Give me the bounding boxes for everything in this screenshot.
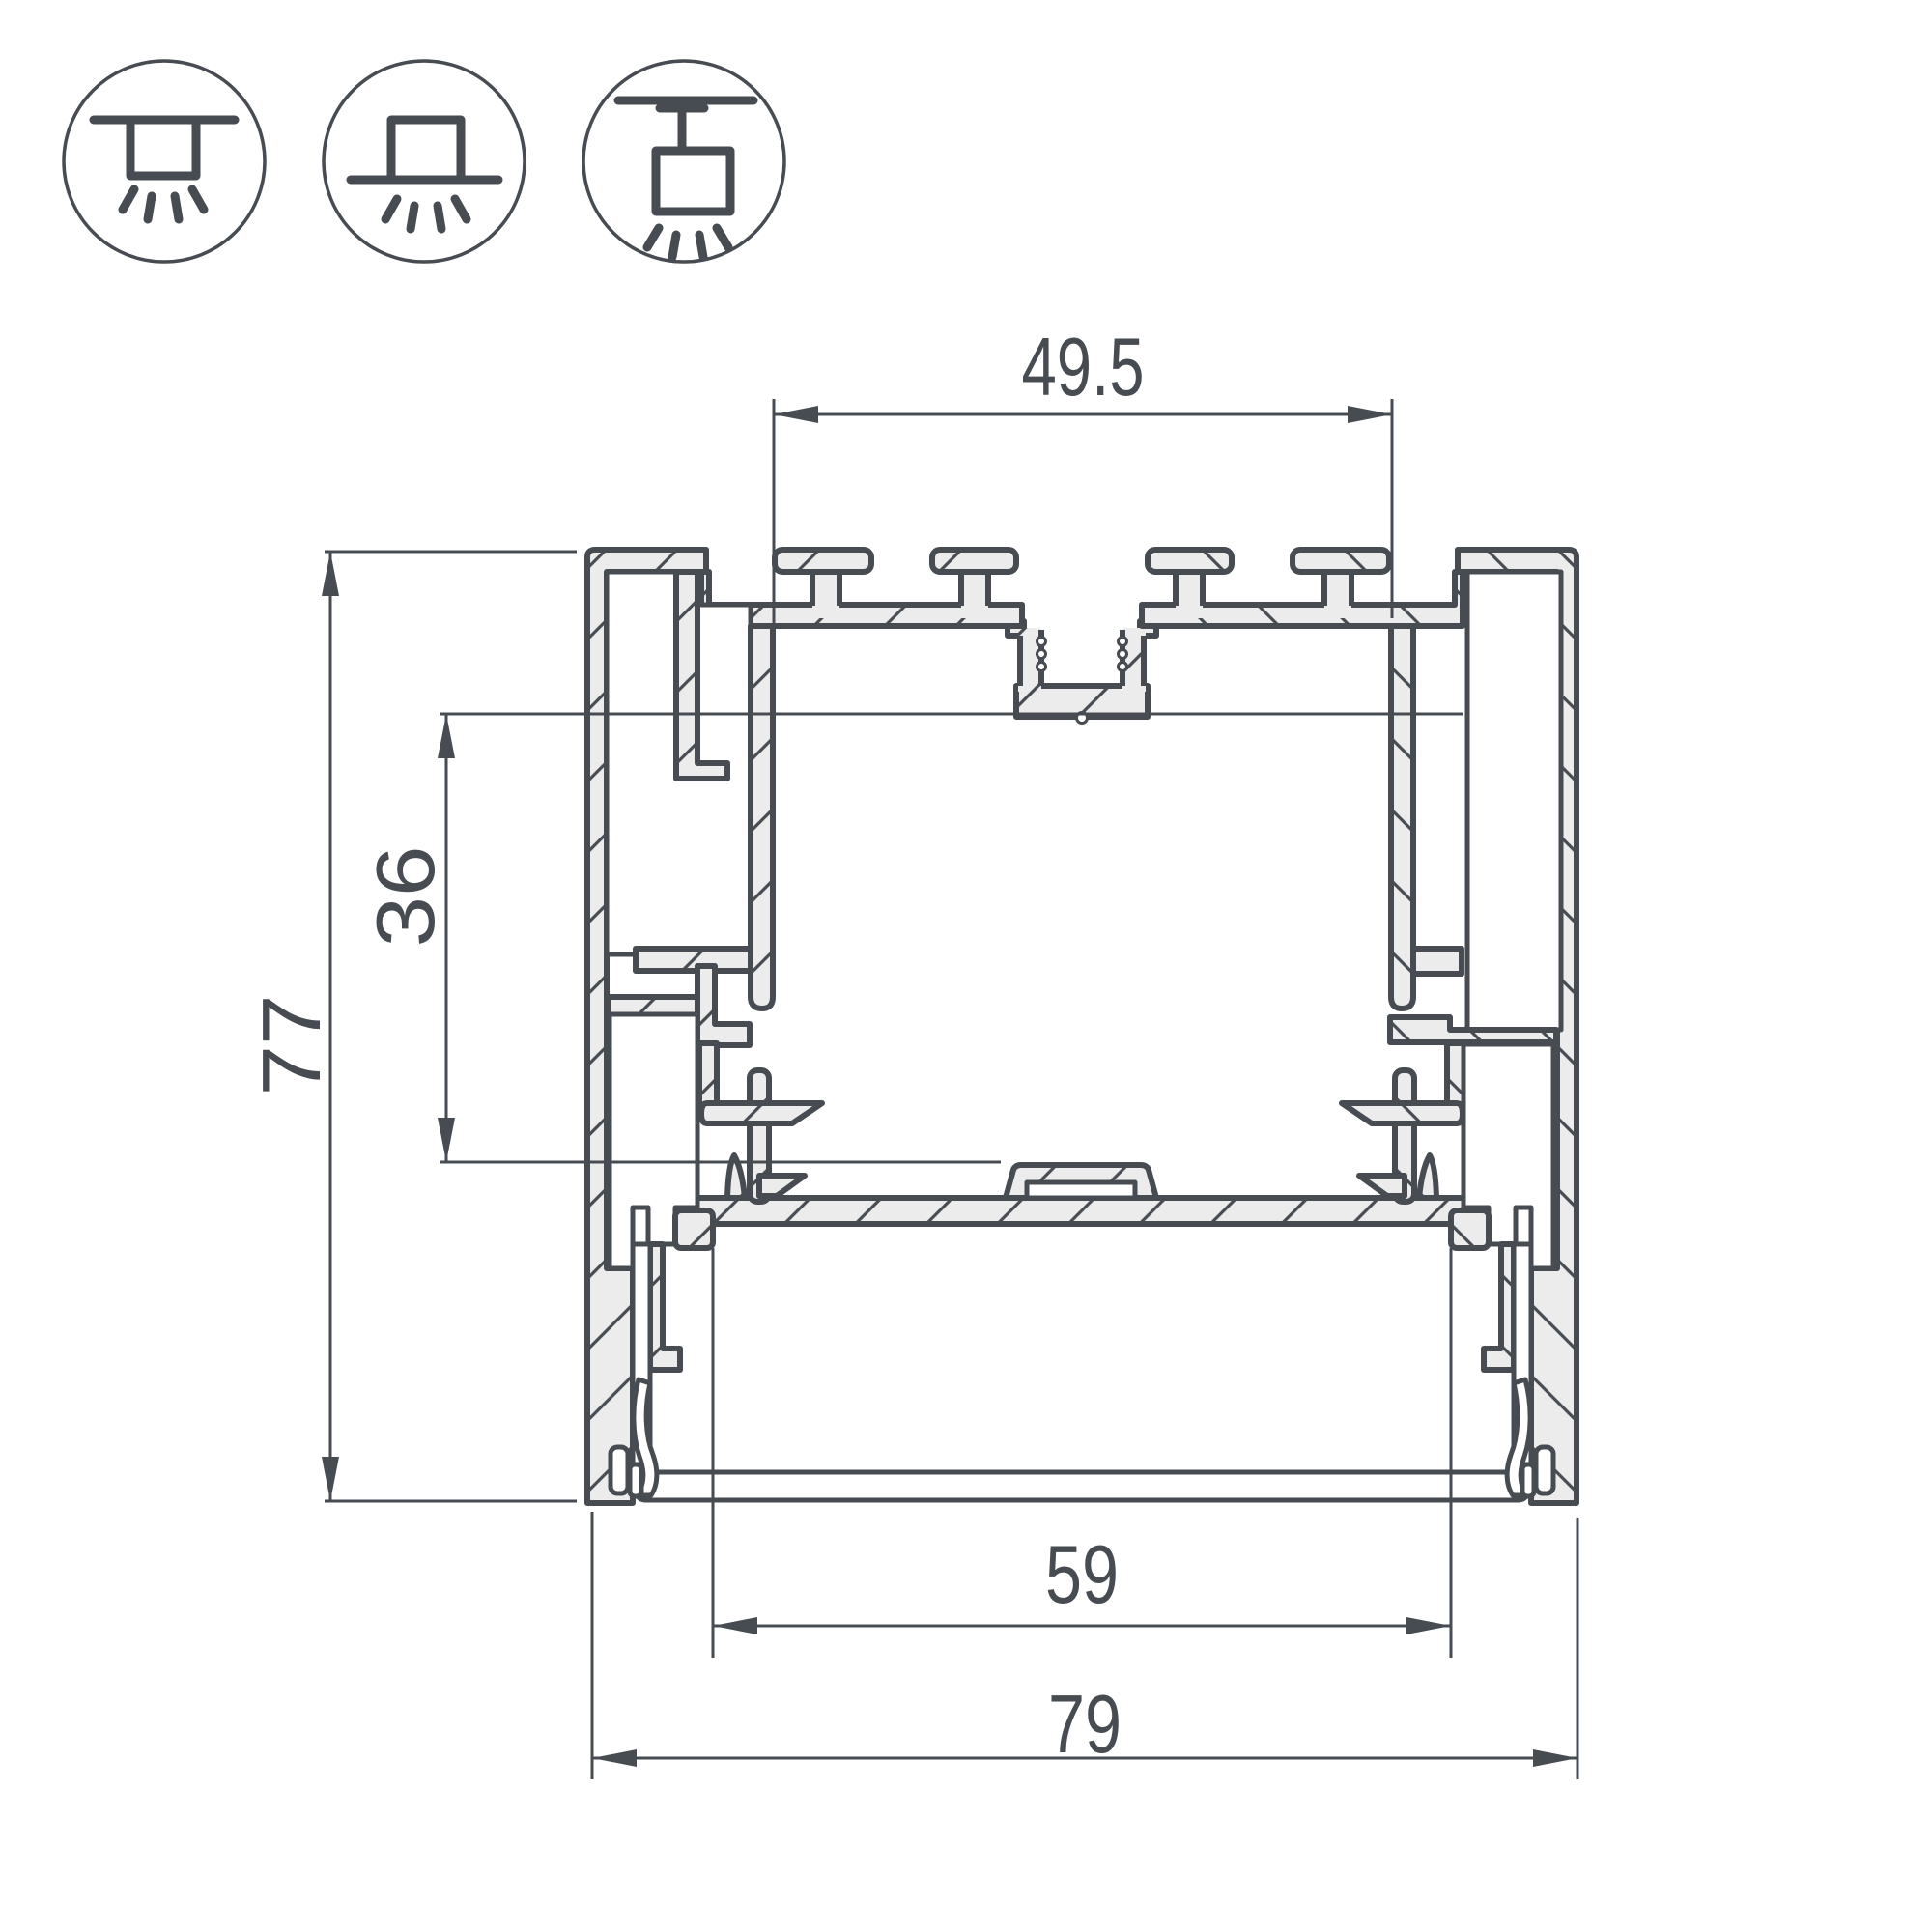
svg-text:36: 36: [360, 846, 452, 948]
svg-text:49.5: 49.5: [1022, 322, 1145, 413]
svg-text:77: 77: [246, 995, 338, 1096]
svg-text:79: 79: [1048, 1679, 1122, 1771]
svg-text:59: 59: [1045, 1529, 1119, 1621]
